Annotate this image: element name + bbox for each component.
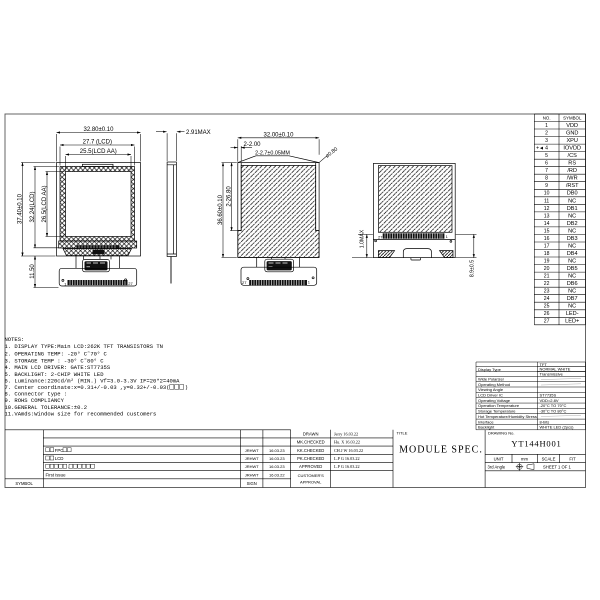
- svg-text:1.0MAX: 1.0MAX: [360, 229, 366, 248]
- svg-text:YT144H001: YT144H001: [511, 438, 561, 448]
- svg-text:MK.CHECKED: MK.CHECKED: [297, 440, 325, 445]
- svg-text:24: 24: [544, 296, 550, 302]
- svg-text:JRHWT: JRHWT: [245, 456, 260, 461]
- svg-text:SIGN: SIGN: [247, 481, 257, 486]
- svg-text:ST7735S: ST7735S: [540, 393, 557, 398]
- svg-text:Hu. X 16.03.22: Hu. X 16.03.22: [334, 440, 360, 445]
- svg-text:2-2.7±0.05MM: 2-2.7±0.05MM: [255, 151, 290, 157]
- svg-text:NC: NC: [568, 304, 576, 310]
- svg-text:TITLE: TITLE: [397, 430, 408, 435]
- svg-text:2.91MAX: 2.91MAX: [186, 130, 211, 136]
- svg-text:NC: NC: [568, 243, 576, 249]
- svg-text:11: 11: [544, 198, 549, 204]
- svg-text:Storage Temperature: Storage Temperature: [478, 409, 516, 414]
- svg-text:L.P G 16.03.22: L.P G 16.03.22: [334, 464, 360, 469]
- svg-text:JRHWT: JRHWT: [245, 464, 260, 469]
- svg-text:8: 8: [545, 176, 548, 182]
- svg-text:32.24(LCD): 32.24(LCD): [30, 191, 36, 222]
- svg-text:8.9±0.5: 8.9±0.5: [469, 260, 475, 277]
- svg-text:XPU: XPU: [566, 138, 578, 144]
- svg-text:/WR: /WR: [567, 176, 578, 182]
- svg-text:FPC: FPC: [55, 448, 64, 453]
- svg-text:GND: GND: [566, 131, 578, 137]
- svg-text:NC: NC: [568, 198, 576, 204]
- svg-text:KK.CHECKED: KK.CHECKED: [297, 448, 324, 453]
- svg-text:Hot Temperature/Humidity Stres: Hot Temperature/Humidity Stress: [478, 414, 537, 419]
- svg-text:NC: NC: [568, 274, 576, 280]
- svg-text:-30°C TO 80°C: -30°C TO 80°C: [540, 409, 567, 414]
- svg-text:/RD: /RD: [567, 168, 577, 174]
- svg-text:Interface: Interface: [478, 419, 494, 424]
- svg-text:VDD: VDD: [566, 123, 578, 129]
- svg-text:PK.CHECKED: PK.CHECKED: [297, 456, 324, 461]
- svg-text:Transmissive: Transmissive: [540, 371, 564, 376]
- svg-text:SYMBOL: SYMBOL: [15, 481, 33, 486]
- svg-text:NC: NC: [568, 228, 576, 234]
- svg-text:16.03.23: 16.03.23: [269, 456, 285, 461]
- svg-text:Operating Voltage: Operating Voltage: [478, 398, 511, 403]
- svg-text:+◄: +◄: [536, 146, 544, 152]
- svg-text:26.5(LCD AA): 26.5(LCD AA): [42, 185, 48, 222]
- svg-text:DRAWING No.: DRAWING No.: [488, 430, 515, 435]
- svg-text:20: 20: [544, 266, 550, 272]
- svg-text:JRHWT: JRHWT: [245, 448, 260, 453]
- svg-text:11.50: 11.50: [30, 264, 36, 279]
- svg-text:2-26.80: 2-26.80: [226, 186, 232, 207]
- svg-text:SYMBOL: SYMBOL: [563, 115, 582, 120]
- svg-text:8-bits: 8-bits: [540, 419, 550, 424]
- svg-text:32.00±0.10: 32.00±0.10: [264, 132, 295, 138]
- svg-text:JRHWT: JRHWT: [245, 472, 260, 477]
- svg-text:27: 27: [128, 281, 133, 286]
- svg-text:LED+: LED+: [565, 319, 579, 325]
- svg-text:,: ,: [68, 464, 69, 469]
- svg-text:Display Type: Display Type: [478, 367, 502, 372]
- svg-text:1: 1: [545, 123, 548, 129]
- svg-text:LCD Driver IC: LCD Driver IC: [478, 393, 503, 398]
- svg-text:mm: mm: [521, 456, 528, 461]
- svg-text:): ): [185, 384, 188, 391]
- svg-text:DB0: DB0: [567, 191, 578, 197]
- svg-text:Viewing Angle: Viewing Angle: [478, 387, 504, 392]
- svg-text:2-2.00: 2-2.00: [244, 142, 262, 148]
- svg-text:/RST: /RST: [566, 183, 579, 189]
- svg-text:16: 16: [544, 236, 550, 242]
- svg-text:DRAWN: DRAWN: [303, 432, 319, 437]
- svg-text:26: 26: [544, 311, 550, 317]
- svg-text:SHEET 1 OF 1: SHEET 1 OF 1: [543, 465, 572, 470]
- svg-text:Wide Polarizer: Wide Polarizer: [478, 377, 505, 382]
- svg-text:7: 7: [545, 168, 548, 174]
- svg-text:3rd Angle: 3rd Angle: [488, 465, 506, 470]
- svg-text:First issue: First issue: [46, 472, 67, 477]
- svg-text:Jerry 16.03.22: Jerry 16.03.22: [334, 432, 358, 437]
- svg-text:27: 27: [242, 280, 247, 285]
- svg-text:LCD: LCD: [55, 456, 64, 461]
- svg-text:5: 5: [545, 153, 548, 159]
- svg-text:27.7 (LCD): 27.7 (LCD): [83, 139, 112, 145]
- svg-text:RS: RS: [568, 161, 576, 167]
- svg-text:DB2: DB2: [567, 221, 578, 227]
- svg-text:9. ROHS COMPLIANCY: 9. ROHS COMPLIANCY: [5, 397, 65, 404]
- svg-text:CUSTOMER'S: CUSTOMER'S: [298, 473, 325, 478]
- svg-text:LED-: LED-: [566, 311, 579, 317]
- svg-text:16.03.23: 16.03.23: [269, 464, 285, 469]
- svg-text:27: 27: [544, 319, 550, 325]
- svg-text:25.5(LCD AA): 25.5(LCD AA): [80, 149, 117, 155]
- svg-text:15: 15: [544, 228, 550, 234]
- svg-text:DB1: DB1: [567, 206, 578, 212]
- svg-text:16.03.23: 16.03.23: [269, 448, 285, 453]
- svg-text:21: 21: [544, 274, 550, 280]
- svg-text:DB3: DB3: [567, 236, 578, 242]
- svg-text:SCALE: SCALE: [542, 456, 556, 461]
- svg-text:22: 22: [544, 281, 550, 287]
- svg-text:25: 25: [544, 304, 550, 310]
- svg-text:UNIT: UNIT: [494, 456, 504, 461]
- svg-text:12: 12: [544, 206, 550, 212]
- svg-text:WHITE LED (2pcs): WHITE LED (2pcs): [540, 425, 575, 430]
- svg-text:32.80±0.10: 32.80±0.10: [84, 127, 115, 133]
- svg-text:DB5: DB5: [567, 266, 578, 272]
- svg-text:DB4: DB4: [567, 251, 578, 257]
- svg-text:4: 4: [545, 146, 548, 152]
- svg-text:/CS: /CS: [568, 153, 578, 159]
- svg-text:2: 2: [545, 131, 548, 137]
- svg-text:Operation Temperature: Operation Temperature: [478, 403, 520, 408]
- svg-text:CH.J W 16.03.22: CH.J W 16.03.22: [334, 448, 363, 453]
- svg-text:9: 9: [545, 183, 548, 189]
- svg-text:23: 23: [544, 289, 550, 295]
- svg-text:27: 27: [378, 234, 383, 239]
- svg-text:13: 13: [544, 213, 550, 219]
- svg-text:IOVDD: IOVDD: [563, 146, 581, 152]
- svg-text:Backlight: Backlight: [478, 425, 495, 430]
- svg-text:L.P G 16.03.22: L.P G 16.03.22: [334, 456, 360, 461]
- svg-text:NC: NC: [568, 213, 576, 219]
- svg-text:APPROVAL: APPROVAL: [300, 479, 322, 484]
- svg-text:Operating Method: Operating Method: [478, 382, 510, 387]
- svg-text:APPROVED: APPROVED: [299, 464, 322, 469]
- svg-text:VDD=2.8V: VDD=2.8V: [540, 398, 559, 403]
- svg-text:19: 19: [544, 259, 550, 265]
- svg-text:DB7: DB7: [567, 296, 578, 302]
- svg-text:36.60±0.10: 36.60±0.10: [218, 194, 224, 225]
- svg-text:NOTES:: NOTES:: [5, 336, 25, 343]
- svg-text:16.03.22: 16.03.22: [269, 472, 285, 477]
- svg-text:-20°C TO 70°C: -20°C TO 70°C: [540, 403, 567, 408]
- svg-text:17: 17: [544, 243, 550, 249]
- svg-text:NC: NC: [568, 289, 576, 295]
- svg-text:18: 18: [544, 251, 550, 257]
- svg-text:37.40±0.10: 37.40±0.10: [17, 193, 23, 224]
- svg-text:FIT: FIT: [569, 456, 576, 461]
- svg-text:6: 6: [545, 161, 548, 167]
- svg-text:NO.: NO.: [543, 115, 551, 120]
- svg-text:NC: NC: [568, 259, 576, 265]
- svg-text:14: 14: [544, 221, 550, 227]
- svg-text:11.VAmds:Window size for recom: 11.VAmds:Window size for recommended cus…: [5, 411, 157, 418]
- svg-text:MODULE SPEC.: MODULE SPEC.: [399, 445, 483, 456]
- svg-text:10: 10: [544, 191, 550, 197]
- svg-text:3: 3: [545, 138, 548, 144]
- svg-text:DB6: DB6: [567, 281, 578, 287]
- svg-text:1. DISPLAY TYPE:Main LCD:262K: 1. DISPLAY TYPE:Main LCD:262K TFT TRANSI…: [5, 343, 163, 350]
